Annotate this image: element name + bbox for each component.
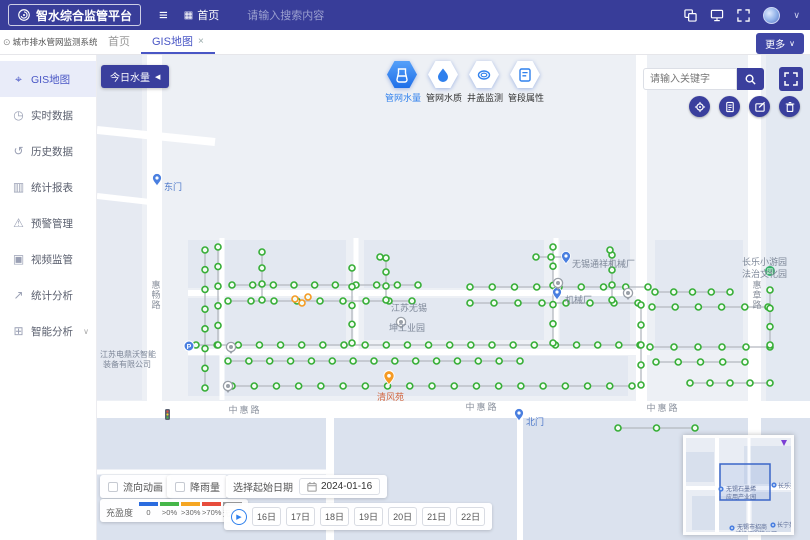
tab-GIS地图[interactable]: GIS地图×: [141, 30, 215, 54]
date-label: 选择起始日期: [233, 479, 293, 494]
ai-icon: ⊞: [12, 324, 25, 338]
layer-button-管网水质[interactable]: 管网水质: [426, 61, 460, 104]
logo-text: 智水综合监管平台: [36, 7, 132, 24]
hex-shape: [426, 61, 460, 88]
header-actions: ∨: [684, 7, 800, 24]
minimap-pin: [718, 486, 723, 491]
start-date-input[interactable]: 2024-01-16: [299, 478, 380, 495]
layer-label: 管网水质: [426, 91, 460, 104]
legend-segment->70%: >70%: [202, 502, 221, 517]
home-breadcrumb[interactable]: ▦ 首页: [184, 7, 219, 23]
poi-label: 清风苑: [377, 391, 404, 402]
road-label: 中惠路: [646, 402, 679, 413]
date-chip-21日[interactable]: 21日: [422, 507, 451, 526]
minimap-label: 长乐苑: [778, 482, 791, 490]
date-chip-17日[interactable]: 17日: [286, 507, 315, 526]
menu-toggle-icon[interactable]: ≡: [159, 8, 168, 23]
map-pin-parking: P: [184, 341, 194, 351]
trend-icon: ↗: [12, 288, 25, 302]
report-button[interactable]: [719, 96, 740, 117]
sidebar-item-统计报表[interactable]: ▥统计报表: [0, 169, 96, 205]
info-icon: ⊙: [3, 37, 11, 48]
poi-label: 长乐小游园: [742, 256, 787, 267]
monitor-icon[interactable]: [710, 9, 724, 22]
tab-bar: ⊙ 城市排水管网监测系统 ^ 首页GIS地图× 更多 ∨: [0, 30, 810, 55]
poi-label: 北门: [526, 416, 544, 427]
date-chip-22日[interactable]: 22日: [456, 507, 485, 526]
today-water-button[interactable]: 今日水量 ◀: [101, 65, 169, 88]
date-chip-18日[interactable]: 18日: [320, 507, 349, 526]
sidebar-item-统计分析[interactable]: ↗统计分析: [0, 277, 96, 313]
minimap-label: 无锡石墨烯: [726, 485, 756, 493]
legend-label: >0%: [160, 508, 179, 517]
date-picker-panel: 选择起始日期 2024-01-16: [226, 475, 387, 498]
search-button[interactable]: [737, 68, 764, 90]
map-search: [643, 68, 764, 90]
date-chip-16日[interactable]: 16日: [252, 507, 281, 526]
sidebar-item-label: 统计报表: [31, 180, 73, 195]
flow-checkbox[interactable]: [108, 482, 118, 492]
layer-button-管段属性[interactable]: 管段属性: [508, 61, 542, 104]
app-logo: 智水综合监管平台: [8, 4, 141, 26]
minimap-pin: [771, 482, 776, 487]
report-icon: [724, 101, 736, 113]
video-icon: ▣: [12, 252, 25, 266]
switch-system-icon[interactable]: [684, 9, 697, 22]
gis-map-icon: ⌖: [12, 72, 25, 87]
sidebar-item-GIS地图[interactable]: ⌖GIS地图: [0, 61, 96, 97]
chevron-down-icon: ∨: [83, 327, 89, 336]
sidebar-item-label: 预警管理: [31, 216, 73, 231]
sidebar-item-label: 智能分析: [31, 324, 73, 339]
card-icon: [517, 67, 533, 83]
tab-list: 首页GIS地图×: [97, 30, 215, 54]
sidebar-item-label: 实时数据: [31, 108, 73, 123]
layer-button-井盖监测[interactable]: 井盖监测: [467, 61, 501, 104]
search-icon: [744, 73, 757, 86]
road-label: 中惠路: [228, 404, 261, 415]
flow-animation-toggle[interactable]: 流向动画: [100, 475, 171, 498]
poi-label: 江苏无锡: [391, 302, 427, 313]
poi-label: 机械厂: [565, 294, 592, 305]
minimap-pin: [729, 525, 734, 530]
rain-checkbox[interactable]: [175, 482, 185, 492]
user-avatar[interactable]: [763, 7, 780, 24]
keyword-input[interactable]: [643, 68, 737, 90]
play-button[interactable]: ▶: [231, 509, 247, 525]
legend-color: [139, 502, 158, 506]
poi-label: 法治文化园: [742, 268, 787, 279]
legend-segment->0%: >0%: [160, 502, 179, 517]
logo-icon: [17, 8, 31, 22]
app-header: 智水综合监管平台 ≡ ▦ 首页 请输入搜索内容 ∨: [0, 0, 810, 30]
minimap-canvas[interactable]: 无锡石墨烯应用产业园长乐苑无锡市招商城纺织服装公司长宁苑: [686, 438, 791, 532]
minimap-label: 应用产业园: [726, 493, 756, 501]
poi-label: 装备有限公司: [103, 359, 151, 369]
minimap-label: 无锡市招商: [737, 523, 767, 531]
system-title[interactable]: ⊙ 城市排水管网监测系统 ^: [0, 30, 97, 54]
minimap-label: 长宁苑: [777, 521, 791, 529]
legend-color: [160, 502, 179, 506]
calendar-icon: [307, 482, 317, 492]
legend-color: [181, 502, 200, 506]
more-button[interactable]: 更多 ∨: [756, 33, 804, 54]
close-icon[interactable]: ×: [198, 36, 204, 47]
header-search-input[interactable]: 请输入搜索内容: [247, 7, 324, 23]
map-canvas[interactable]: 园P中惠路中惠路中惠路惠畅路惠章路无锡通祥机械厂机械厂江苏无锡坤工业园长乐小游园…: [97, 55, 810, 540]
edit-icon: [754, 101, 766, 113]
minimap-pin: [770, 522, 775, 527]
manhole-icon: [476, 67, 492, 83]
hex-shape: [385, 61, 419, 88]
map-layer-toolbar: 管网水量管网水质井盖监测管段属性: [385, 61, 542, 104]
chevron-down-icon[interactable]: ∨: [793, 10, 800, 21]
svg-text:P: P: [187, 344, 192, 351]
legend-label: >30%: [181, 508, 200, 517]
legend-segment-0: 0: [139, 502, 158, 517]
sidebar-item-智能分析[interactable]: ⊞智能分析∨: [0, 313, 96, 349]
tab-label: 首页: [108, 33, 130, 49]
fullscreen-icon: [784, 72, 798, 86]
sidebar-item-label: GIS地图: [31, 72, 70, 87]
clock-icon: ◷: [12, 108, 25, 122]
road-label: 惠章路: [752, 279, 761, 310]
fullscreen-icon[interactable]: [737, 9, 750, 22]
hex-shape: [508, 61, 542, 88]
manhole-hex: [469, 61, 499, 88]
sidebar-item-实时数据[interactable]: ◷实时数据: [0, 97, 96, 133]
droplet-hex: [428, 61, 458, 88]
chevron-down-icon: ∨: [789, 39, 795, 48]
droplet-icon: [435, 67, 451, 83]
legend-label: >70%: [202, 508, 221, 517]
rainfall-toggle[interactable]: 降雨量: [167, 475, 228, 498]
overview-minimap[interactable]: 无锡石墨烯应用产业园长乐苑无锡市招商城纺织服装公司长宁苑: [683, 435, 794, 535]
sidebar-item-历史数据[interactable]: ↺历史数据: [0, 133, 96, 169]
road-label: 中惠路: [465, 401, 498, 412]
layer-label: 井盖监测: [467, 91, 501, 104]
legend-label: 0: [139, 508, 158, 517]
locate-icon: [694, 101, 706, 113]
card-hex: [510, 61, 540, 88]
grid-icon: ▦: [184, 10, 193, 21]
sidebar-item-预警管理[interactable]: ⚠预警管理: [0, 205, 96, 241]
poi-label: 坤工业园: [389, 322, 425, 333]
report-icon: ▥: [12, 180, 25, 194]
legend-title: 充盈度: [106, 506, 133, 519]
poi-label: 江苏电鼎沃智能: [100, 349, 156, 359]
date-chip-20日[interactable]: 20日: [388, 507, 417, 526]
beaker-hex: [387, 61, 417, 88]
layer-label: 管段属性: [508, 91, 542, 104]
locate-button[interactable]: [689, 96, 710, 117]
poi-label: 无锡通祥机械厂: [572, 258, 635, 269]
legend-segment->30%: >30%: [181, 502, 200, 517]
date-chip-19日[interactable]: 19日: [354, 507, 383, 526]
legend-color: [202, 502, 221, 506]
tab-首页[interactable]: 首页: [97, 30, 141, 54]
edit-button[interactable]: [749, 96, 770, 117]
sidebar-item-label: 视频监管: [31, 252, 73, 267]
delete-button[interactable]: [779, 96, 800, 117]
map-action-buttons: [689, 96, 800, 117]
traffic-light-icon: [165, 409, 170, 420]
sidebar: ⌖GIS地图◷实时数据↺历史数据▥统计报表⚠预警管理▣视频监管↗统计分析⊞智能分…: [0, 55, 97, 540]
sidebar-item-label: 历史数据: [31, 144, 73, 159]
alert-icon: ⚠: [12, 216, 25, 230]
sidebar-item-视频监管[interactable]: ▣视频监管: [0, 241, 96, 277]
collapse-left-icon: ◀: [155, 73, 160, 81]
road-label: 惠畅路: [151, 279, 160, 310]
beaker-icon: [394, 67, 410, 83]
map-fullscreen-button[interactable]: [779, 67, 803, 91]
date-chip-panel: ▶ 16日17日18日19日20日21日22日: [224, 503, 492, 530]
history-icon: ↺: [12, 144, 25, 158]
layer-label: 管网水量: [385, 91, 419, 104]
layer-button-管网水量[interactable]: 管网水量: [385, 61, 419, 104]
poi-label: 东门: [164, 181, 182, 192]
trash-icon: [784, 101, 796, 113]
hex-shape: [467, 61, 501, 88]
sidebar-item-label: 统计分析: [31, 288, 73, 303]
tab-label: GIS地图: [152, 33, 193, 49]
